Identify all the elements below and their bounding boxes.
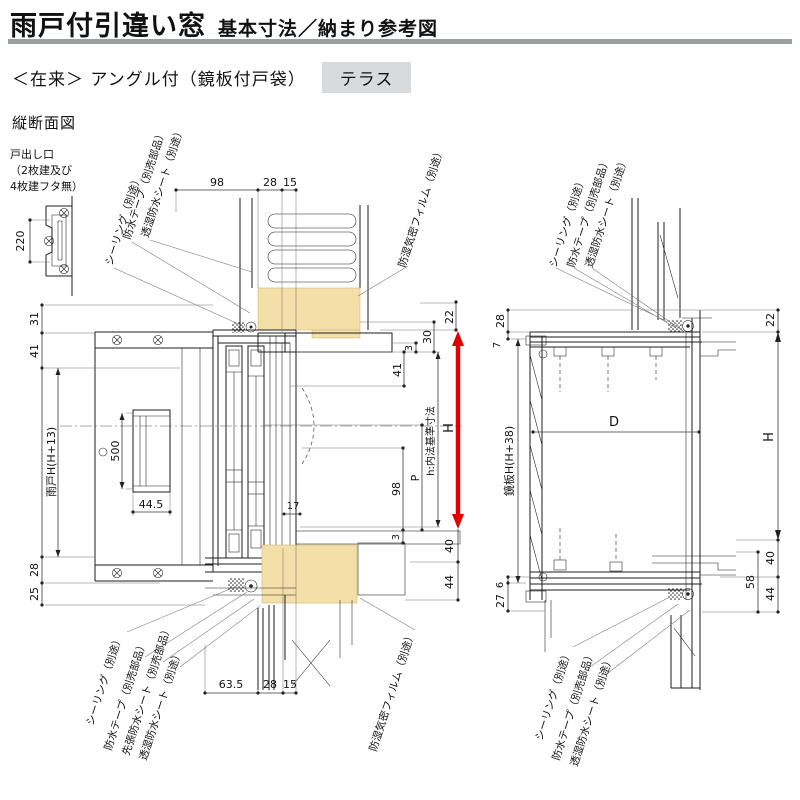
- dim-handle-220: 220: [14, 231, 27, 252]
- dim-handle: 500 44.5: [109, 413, 172, 516]
- dim-right-22: 22: [443, 310, 456, 324]
- shutter-handle: [133, 410, 170, 492]
- dim-D-chain: D: [531, 415, 700, 434]
- dim-bottom-28: 28: [263, 678, 277, 691]
- dim-bottom-15: 15: [283, 678, 297, 691]
- dim-right-40: 40: [764, 551, 777, 565]
- dim-right-3-bottom: 3: [391, 534, 402, 540]
- dim-bottom-63-5: 63.5: [219, 678, 244, 691]
- dim-left-7: 7: [492, 342, 503, 348]
- right-view-left-chain: 28 7 6 27 鏡板H(H+38): [492, 308, 632, 612]
- right-labels-bottom: シーリング（別途） 防水テープ（別売部品） 透湿防水シート（別途）: [532, 598, 690, 768]
- dim-right-98: 98: [390, 482, 403, 496]
- dim-panel-height: 鏡板H(H+38): [502, 426, 516, 496]
- dim-P: P: [409, 474, 422, 481]
- note-line-2: （2枚建及び: [10, 163, 72, 177]
- label-film-bottom: 防湿気密フィルム（別途）: [366, 629, 417, 752]
- dim-D: D: [609, 415, 619, 430]
- dim-right-44: 44: [764, 587, 777, 601]
- dim-top-98: 98: [210, 176, 224, 189]
- dim-right-44: 44: [443, 575, 456, 589]
- box-bottom-rail: [530, 528, 736, 652]
- dim-left-6: 6: [495, 582, 506, 588]
- dim-top-28: 28: [263, 176, 277, 189]
- dim-inner-height: h:内法基準寸法: [424, 406, 437, 476]
- dim-right-40: 40: [443, 539, 456, 553]
- dim-left-28: 28: [28, 563, 41, 577]
- dim-offset-17: 17: [287, 501, 300, 512]
- dim-handle-500: 500: [109, 441, 122, 462]
- right-section-view: D 28 7 6 27 鏡板H(H+38): [492, 155, 781, 768]
- dim-top-15: 15: [283, 176, 297, 189]
- dim-right-58: 58: [744, 575, 757, 589]
- face-panel: [526, 336, 547, 602]
- left-section-view: 戸出し口 （2枚建及び 4枚建フタ無） 220: [10, 125, 464, 762]
- dim-shutter-height: 雨戸H(H+13): [45, 427, 58, 497]
- note-line-1: 戸出し口: [10, 147, 54, 161]
- dim-height-H: H: [442, 423, 457, 433]
- dim-right-3-top: 3: [404, 345, 415, 351]
- sash-inner: [248, 346, 264, 558]
- sill-area: [205, 531, 460, 690]
- left-labels-bottom: シーリング（別途） 防水テープ（別売部品） 先張防水シート（別売部品） 透湿防水…: [83, 586, 417, 762]
- dim-handle-44-5: 44.5: [139, 498, 164, 511]
- right-labels-top: シーリング（別途） 防水テープ（別売部品） 透湿防水シート（別途）: [546, 155, 686, 333]
- dim-height-H: H: [762, 432, 777, 442]
- dim-left-27: 27: [494, 594, 507, 608]
- dim-left-41: 41: [28, 344, 41, 358]
- box-top-rail: [530, 332, 736, 392]
- dim-right-22: 22: [764, 313, 777, 327]
- handle-detail: 220: [14, 196, 72, 296]
- dim-left-28: 28: [494, 314, 507, 328]
- section-drawing: 戸出し口 （2枚建及び 4枚建フタ無） 220: [0, 0, 800, 800]
- label-film-top: 防湿気密フィルム（別途）: [395, 145, 446, 268]
- dim-right-30: 30: [421, 330, 434, 344]
- sash-outer: [226, 346, 242, 558]
- dim-right-41: 41: [391, 363, 404, 377]
- right-wall-below: [671, 310, 700, 690]
- note-line-3: 4枚建フタ無）: [10, 179, 83, 193]
- dim-left-31: 31: [28, 312, 41, 326]
- dim-left-25: 25: [28, 587, 41, 601]
- drawing-page: 雨戸付引違い窓基本寸法／納まり参考図 ＜在来＞ アングル付（鏡板付戸袋）テラス …: [0, 0, 800, 800]
- door-outlet-note: 戸出し口 （2枚建及び 4枚建フタ無）: [10, 147, 83, 193]
- right-view-right-chain: 22 H 40 44 58: [640, 308, 781, 613]
